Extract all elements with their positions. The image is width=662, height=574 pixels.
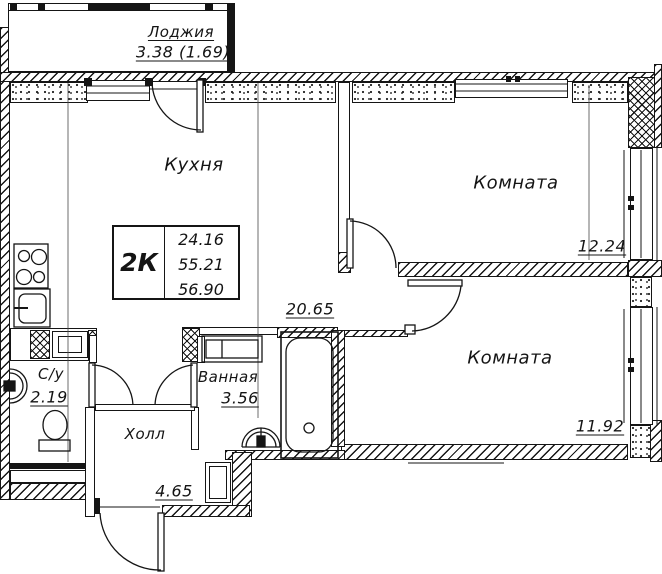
wc-sink: [4, 369, 27, 403]
room1-label: Комната: [473, 173, 558, 194]
room2-door: [405, 280, 462, 334]
wc-area: 2.19: [30, 388, 68, 407]
toilet: [39, 411, 70, 452]
hall-area: 4.65: [155, 482, 193, 501]
room2-area: 11.92: [576, 417, 624, 436]
wash-basin: [242, 428, 280, 447]
hall-label: Холл: [125, 425, 166, 443]
washing-machine: [202, 336, 262, 362]
floor-plan: Лоджия 3.38 (1.69) Кухня 20.65 Комната 1…: [0, 0, 662, 574]
door-arc: [152, 81, 201, 130]
entry-door: [100, 513, 164, 571]
wc-door: [89, 363, 133, 407]
kitchen-sink: [14, 289, 50, 327]
living-area-value: 24.16: [164, 227, 238, 252]
flat-area-table: 2К 24.16 55.21 56.90: [112, 225, 240, 300]
door-arc: [92, 365, 133, 405]
bathroom-door: [155, 363, 197, 407]
bathtub: [281, 332, 338, 458]
room2-label: Комната: [467, 348, 552, 369]
door-arc: [412, 286, 461, 331]
door-arc: [350, 221, 396, 268]
flat-area-value: 55.21: [164, 252, 238, 277]
kitchen-label: Кухня: [164, 155, 223, 176]
balcony-door: [152, 80, 203, 132]
room1-door: [347, 219, 396, 268]
plan-linework: [0, 0, 662, 574]
stove: [14, 244, 48, 288]
room1-area: 12.24: [578, 237, 626, 256]
loggia-area: 3.38 (1.69): [136, 43, 230, 62]
loggia-label: Лоджия: [148, 23, 214, 41]
bathroom-area: 3.56: [221, 389, 259, 408]
kitchen-area: 20.65: [286, 300, 334, 319]
bathroom-label: Ванная: [198, 368, 258, 386]
total-area-value: 56.90: [164, 277, 238, 302]
flat-type: 2К: [114, 227, 165, 298]
wc-label: С/у: [38, 365, 64, 383]
door-arc: [100, 513, 161, 570]
door-arc: [155, 365, 193, 405]
